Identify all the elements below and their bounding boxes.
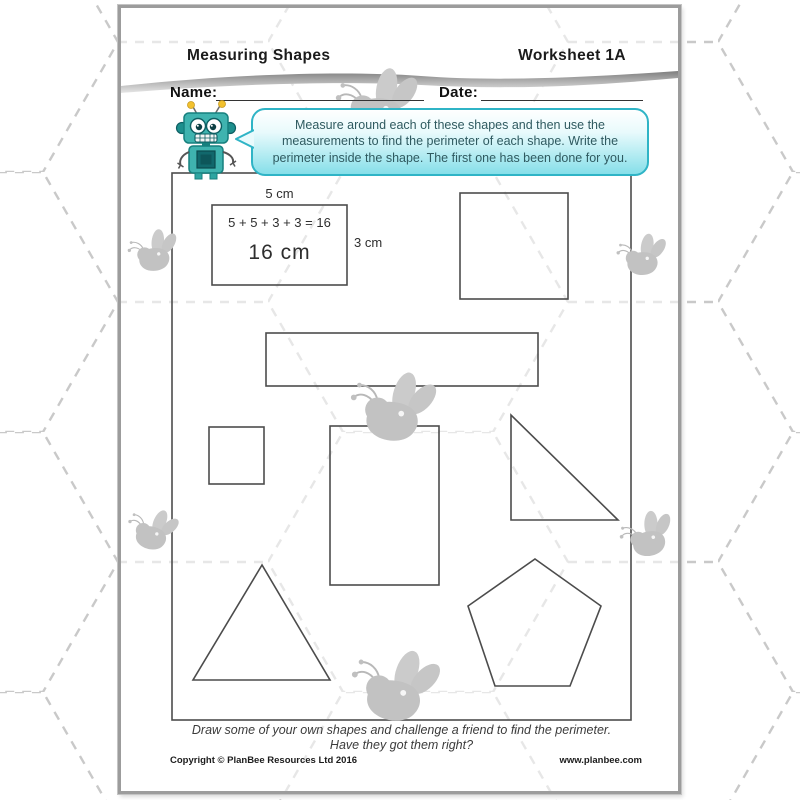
speech-bubble-tail: [234, 128, 254, 150]
date-input-line[interactable]: [481, 99, 643, 101]
example-top-length-label: 5 cm: [212, 186, 347, 201]
draw-your-own-prompt-line2: Have they got them right?: [172, 738, 631, 752]
copyright-text: Copyright © PlanBee Resources Ltd 2016: [170, 755, 357, 766]
name-input-line[interactable]: [216, 99, 424, 101]
example-equation: 5 + 5 + 3 + 3 = 16: [212, 215, 347, 230]
long-rectangle-shape: [266, 333, 538, 386]
instructions-text: Measure around each of these shapes and …: [273, 118, 628, 165]
right-triangle-shape: [511, 415, 618, 520]
page-title: Measuring Shapes: [187, 47, 330, 65]
website-link[interactable]: www.planbee.com: [559, 755, 642, 766]
date-label: Date:: [439, 84, 478, 101]
name-label: Name:: [170, 84, 217, 101]
worksheet-number: Worksheet 1A: [518, 47, 626, 65]
example-perimeter-answer: 16 cm: [212, 241, 347, 265]
worksheet-page: Measuring Shapes Worksheet 1A Name: Date…: [118, 5, 681, 794]
small-square-shape: [209, 427, 264, 484]
square-shape: [460, 193, 568, 299]
example-side-length-label: 3 cm: [354, 235, 382, 250]
pentagon-shape: [468, 559, 601, 686]
draw-your-own-prompt-line1: Draw some of your own shapes and challen…: [172, 723, 631, 737]
equilateral-triangle-shape: [193, 565, 330, 680]
tall-rectangle-shape: [330, 426, 439, 585]
speech-bubble: Measure around each of these shapes and …: [251, 108, 649, 176]
